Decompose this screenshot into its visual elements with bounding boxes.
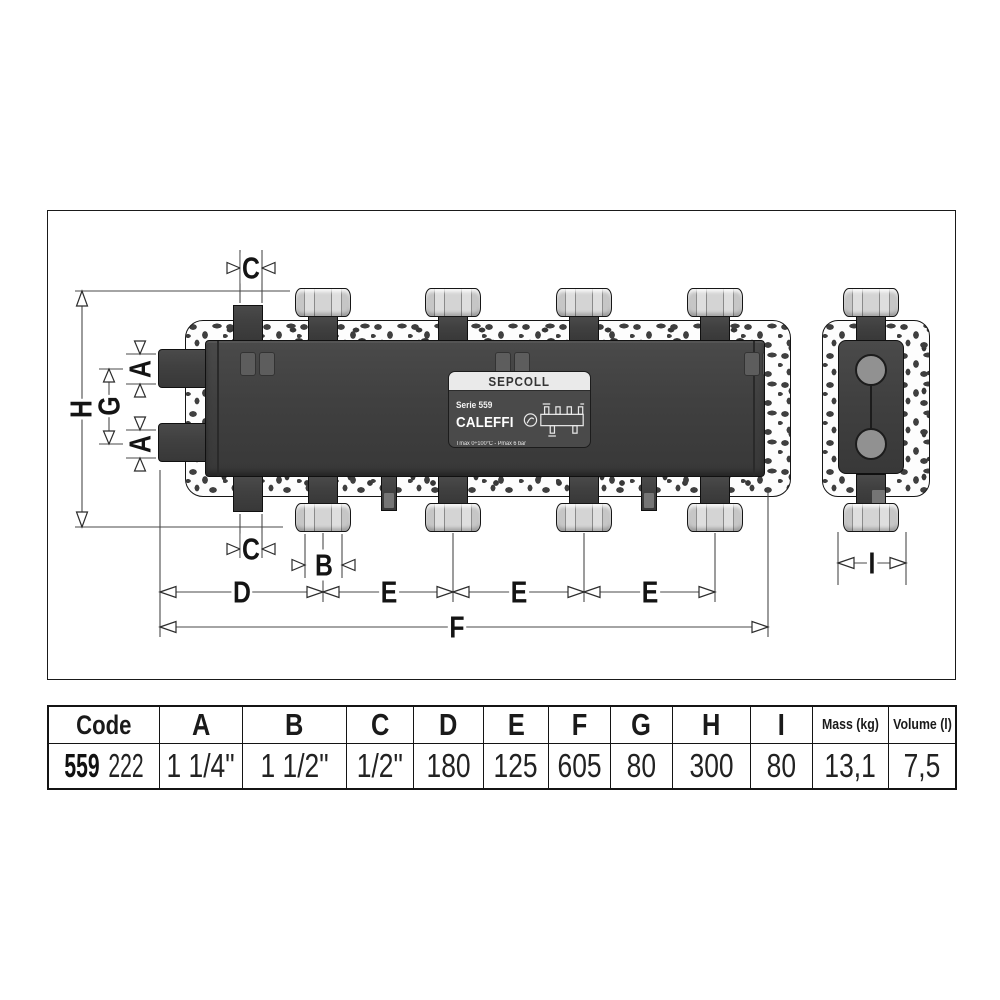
port-circle-top [855,354,887,386]
drain-valve [641,476,657,511]
cell-d: 180 [414,744,484,788]
top-connection-stub [233,305,263,342]
col-header-code: Code [49,707,160,744]
union-stem [700,316,730,342]
cell-volume: 7,5 [889,744,955,788]
label-specs: Tmax 0÷100°C - Pmax 6 bar [456,441,526,447]
dim-label-c-bottom: C [240,534,261,565]
cell-code: 559222 [49,744,160,788]
bottom-connection-stub [233,476,263,512]
union-stem [569,476,599,505]
label-banner: SEPCOLL [449,372,590,391]
vent-plug [744,352,760,376]
dim-label-b: B [313,550,334,581]
col-header-h: H [673,707,751,744]
cell-e: 125 [484,744,549,788]
union-stem [308,316,338,342]
cell-a: 1 1/4" [160,744,243,788]
union-nut [843,288,899,317]
dim-label-e1: E [379,577,399,608]
col-header-volume: Volume (l) [889,707,955,744]
union-nut [295,288,351,317]
dim-label-d: D [231,577,252,608]
dim-label-a-bottom: A [125,433,156,454]
cell-c: 1/2" [347,744,414,788]
vent-plug [259,352,275,376]
cell-i: 80 [751,744,813,788]
union-nut [295,503,351,532]
dim-label-f: F [448,612,466,643]
union-nut [556,503,612,532]
cell-b: 1 1/2" [243,744,347,788]
dim-label-i: I [867,548,877,579]
union-stem [438,476,468,505]
label-title: SEPCOLL [489,374,551,389]
col-header-e: E [484,707,549,744]
col-header-i: I [751,707,813,744]
cell-mass: 13,1 [813,744,889,788]
dimension-table: Code A B C D E F G H I Mass (kg) Volume … [47,705,957,790]
product-label: SEPCOLL Serie 559 CALEFFI Tmax 0÷100°C -… [448,371,591,448]
union-stem [856,474,886,505]
union-nut [556,288,612,317]
dim-label-e3: E [640,577,660,608]
col-header-d: D [414,707,484,744]
union-stem [569,316,599,342]
union-stem [308,476,338,505]
cell-h: 300 [673,744,751,788]
manifold-schematic-icon [522,395,586,445]
union-stem [438,316,468,342]
vent-plug [240,352,256,376]
col-header-f: F [549,707,611,744]
union-stem [700,476,730,505]
side-port-top [158,349,207,388]
union-stem [856,314,886,342]
dim-label-g: G [94,395,125,418]
union-nut [687,288,743,317]
union-nut [687,503,743,532]
col-header-c: C [347,707,414,744]
port-circle-bottom [855,428,887,460]
col-header-mass: Mass (kg) [813,707,889,744]
col-header-a: A [160,707,243,744]
label-series: Serie 559 [456,400,492,410]
code-prefix: 559 [64,747,99,785]
cell-g: 80 [611,744,673,788]
label-brand: CALEFFI [456,415,514,431]
col-header-g: G [611,707,673,744]
side-body [838,340,904,474]
drain-cap [384,493,394,508]
union-nut [843,503,899,532]
page: SEPCOLL Serie 559 CALEFFI Tmax 0÷100°C -… [0,0,1000,1000]
col-header-b: B [243,707,347,744]
union-nut [425,503,481,532]
drain-cap [644,493,654,508]
code-suffix: 222 [108,747,143,785]
cell-f: 605 [549,744,611,788]
dim-label-a-top: A [125,358,156,379]
dim-label-e2: E [509,577,529,608]
vent-plug [762,352,765,376]
dim-label-c-top: C [240,253,261,284]
body-end-edge [217,341,219,476]
union-nut [425,288,481,317]
side-port-bottom [158,423,207,462]
drain-valve [381,476,397,511]
